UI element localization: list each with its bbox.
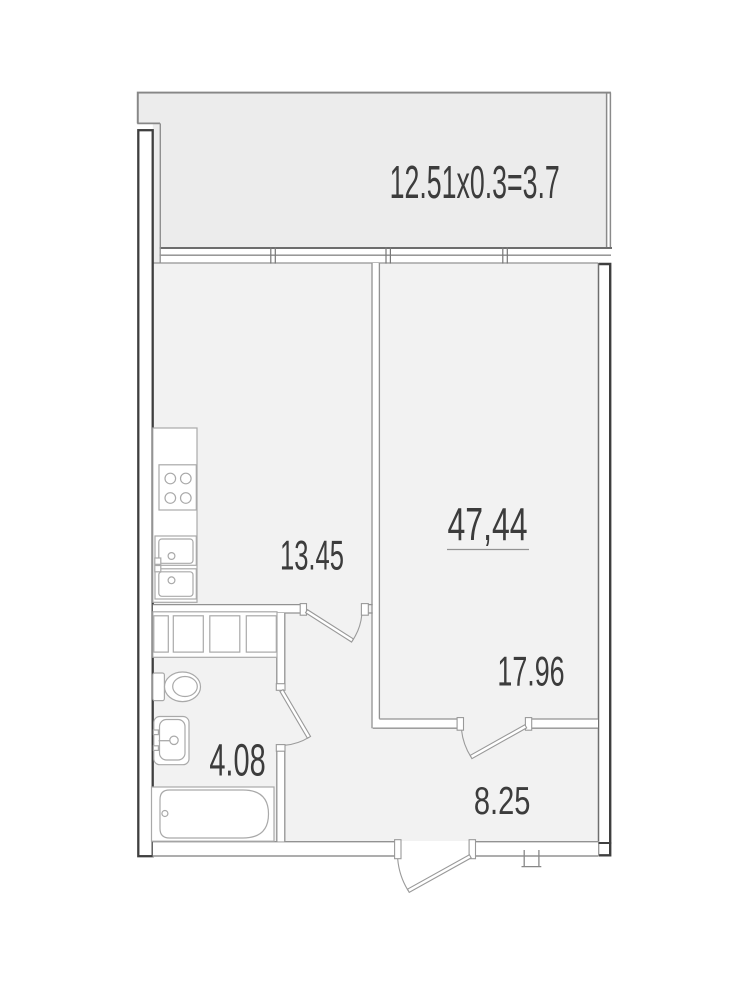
svg-text:12.51x0.3=3.7: 12.51x0.3=3.7: [390, 156, 560, 207]
svg-text:17.96: 17.96: [497, 649, 564, 695]
svg-text:13.45: 13.45: [280, 533, 344, 579]
svg-text:47,44: 47,44: [448, 499, 528, 550]
svg-text:8.25: 8.25: [474, 780, 531, 823]
svg-text:4.08: 4.08: [209, 736, 265, 786]
